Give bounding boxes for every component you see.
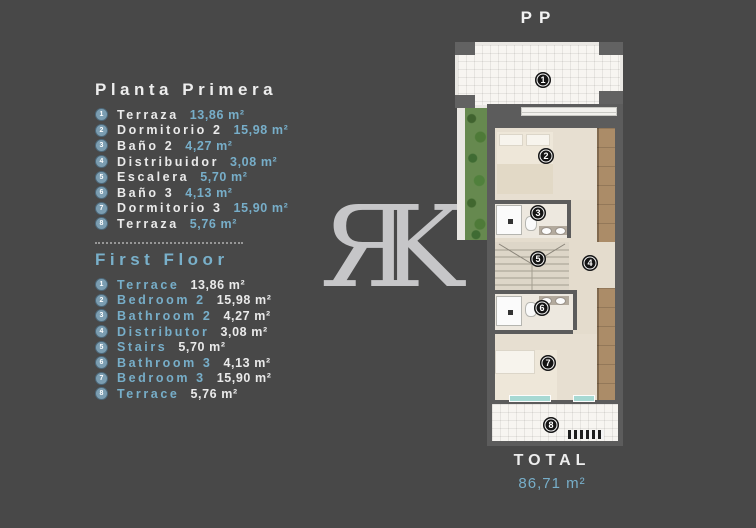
room-number-badge: 1 [95,278,108,291]
glass-door-bottom [509,395,551,402]
plan-room-badge-3: 3 [530,205,546,221]
list-item: 6 Baño 3 4,13 m² [95,185,288,201]
room-name: Dormitorio 2 [117,123,223,137]
list-item: 1 Terraza 13,86 m² [95,107,288,123]
room-area: 15,90 m² [234,201,289,215]
list-item: 3 Bathroom 2 4,27 m² [95,308,272,324]
shower-drain [508,310,513,315]
plan-room-badge-1: 1 [535,72,551,88]
list-item: 2 Dormitorio 2 15,98 m² [95,123,288,139]
room-name: Dormitorio 3 [117,201,223,215]
stair-treads [495,242,569,290]
plan-room-badge-6: 6 [534,300,550,316]
room-name: Bedroom 3 [117,371,206,385]
room-number-badge: 4 [95,325,108,338]
room-name: Escalera [117,170,189,184]
glass-line [522,112,616,113]
legend-spanish: Planta Primera 1 Terraza 13,86 m² 2 Dorm… [95,80,288,232]
list-item: 6 Bathroom 3 4,13 m² [95,355,272,371]
plan-room-badge-7: 7 [540,355,556,371]
total-value: 86,71 m² [462,475,642,492]
room-area: 5,76 m² [190,387,237,401]
list-item: 7 Bedroom 3 15,90 m² [95,371,272,387]
room-area: 4,13 m² [185,186,232,200]
sink-counter [539,226,569,235]
list-item: 4 Distribuidor 3,08 m² [95,154,288,170]
room-name: Bathroom 2 [117,309,212,323]
plan-room-badge-4: 4 [582,255,598,271]
room-name: Distributor [117,325,210,339]
room-number-badge: 1 [95,108,108,121]
logo-letter-k: K [380,198,464,318]
staircase [495,242,569,290]
wall-pillar [455,42,475,55]
plan-room-badge-5: 5 [530,251,546,267]
room-area: 15,90 m² [217,371,272,385]
list-item: 7 Dormitorio 3 15,90 m² [95,201,288,217]
wall-pillar [599,42,623,55]
exterior-stair-mark [568,430,604,439]
plan-room-badge-8: 8 [543,417,559,433]
room-name: Stairs [117,340,167,354]
room-number-badge: 5 [95,341,108,354]
total-label: TOTAL [462,452,642,470]
shower-drain [508,219,513,224]
room-area: 3,08 m² [221,325,268,339]
list-item: 3 Baño 2 4,27 m² [95,138,288,154]
room-area: 15,98 m² [234,123,289,137]
list-item: 1 Terrace 13,86 m² [95,277,272,293]
room-area: 4,13 m² [223,356,270,370]
shower [496,205,522,235]
shower [496,296,522,326]
room-name: Bathroom 3 [117,356,212,370]
room-number-badge: 8 [95,217,108,230]
room-area: 3,08 m² [230,155,277,169]
room-number-badge: 7 [95,202,108,215]
dotted-separator [95,242,243,244]
room-number-badge: 6 [95,186,108,199]
room-number-badge: 4 [95,155,108,168]
pillow [526,134,550,146]
legend-spanish-title: Planta Primera [95,80,288,100]
list-item: 8 Terrace 5,76 m² [95,386,272,402]
interior-wall [573,290,577,330]
room-number-badge: 8 [95,387,108,400]
legend-english: First Floor 1 Terrace 13,86 m² 2 Bedroom… [95,250,272,402]
room-number-badge: 2 [95,294,108,307]
room-area: 5,70 m² [178,340,225,354]
room-area: 4,27 m² [185,139,232,153]
total-area-block: TOTAL 86,71 m² [462,452,642,492]
planting-strip [465,108,487,240]
terrace-side-wall [457,108,465,240]
list-item: 5 Stairs 5,70 m² [95,339,272,355]
wardrobe-bedroom2 [597,128,615,242]
room-number-badge: 3 [95,309,108,322]
room-number-badge: 5 [95,171,108,184]
floor-plan: PP [455,42,623,446]
room-area: 13,86 m² [190,278,245,292]
sink [555,297,566,305]
room-number-badge: 2 [95,124,108,137]
glass-door-top [521,107,617,116]
list-item: 2 Bedroom 2 15,98 m² [95,293,272,309]
plan-room-badge-2: 2 [538,148,554,164]
room-name: Distribuidor [117,155,219,169]
room-name: Terraza [117,108,179,122]
bed-sheet [495,350,535,374]
wall-pillar [455,95,475,108]
glass-window-bottom [573,395,595,402]
room-name: Terrace [117,278,179,292]
rk-logo-watermark: Я K [320,198,464,318]
room-number-badge: 6 [95,356,108,369]
sink [555,227,566,235]
room-area: 15,98 m² [217,293,272,307]
room-name: Bedroom 2 [117,293,206,307]
room-number-badge: 7 [95,372,108,385]
room-name: Terrace [117,387,179,401]
list-item: 8 Terraza 5,76 m² [95,216,288,232]
wardrobe-bedroom3 [597,288,615,400]
legend-english-title: First Floor [95,250,272,270]
plan-label: PP [455,8,623,28]
room-number-badge: 3 [95,139,108,152]
pillow [499,134,523,146]
list-item: 4 Distributor 3,08 m² [95,324,272,340]
room-name: Baño 2 [117,139,174,153]
room-name: Terraza [117,217,179,231]
room-area: 5,70 m² [200,170,247,184]
room-area: 13,86 m² [190,108,245,122]
bed-blanket [497,164,553,194]
room-area: 4,27 m² [223,309,270,323]
list-item: 5 Escalera 5,70 m² [95,169,288,185]
sink [541,227,552,235]
interior-wall [567,200,571,238]
room-name: Baño 3 [117,186,174,200]
room-area: 5,76 m² [190,217,237,231]
